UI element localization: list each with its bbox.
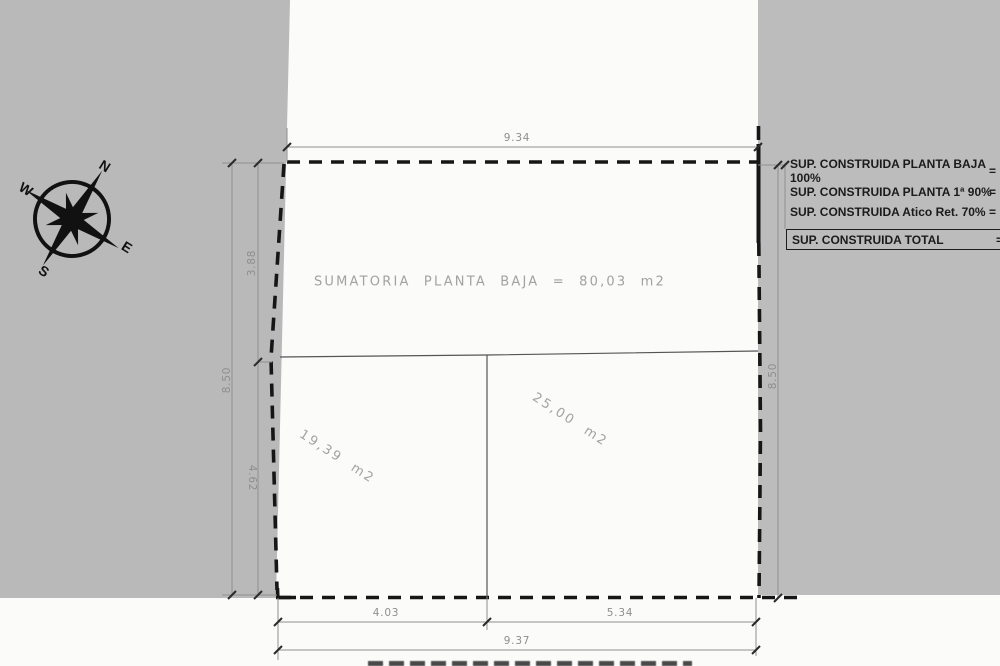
legend-row-equals: = — [989, 205, 996, 219]
legend-row-atico: SUP. CONSTRUIDA Atico Ret. 70% = — [790, 203, 998, 220]
dim-left-upper: 3.88 — [246, 250, 258, 277]
plan-boundary — [271, 126, 806, 598]
legend-row-equals: = — [989, 164, 996, 178]
dimension-lines — [222, 128, 785, 660]
legend-total-box: SUP. CONSTRUIDA TOTAL = — [786, 229, 1000, 250]
legend-row-planta-baja: SUP. CONSTRUIDA PLANTA BAJA 100% = — [790, 162, 998, 179]
dimension-ticks — [228, 143, 789, 654]
legend-row-label: SUP. CONSTRUIDA PLANTA 1ª 90% — [790, 185, 992, 199]
legend-total-equals: = — [996, 233, 1000, 247]
legend-total-label: SUP. CONSTRUIDA TOTAL — [792, 233, 944, 247]
dim-bottom-total: 9.37 — [504, 635, 531, 647]
plan-linework — [0, 0, 1000, 666]
legend-row-label: SUP. CONSTRUIDA PLANTA BAJA 100% — [790, 157, 998, 185]
dim-right-total: 8.50 — [767, 363, 779, 390]
dim-top: 9.34 — [504, 132, 531, 144]
summary-area-label: SUMATORIA PLANTA BAJA = 80,03 m2 — [314, 275, 666, 290]
legend-row-planta-1: SUP. CONSTRUIDA PLANTA 1ª 90% = — [790, 183, 998, 200]
dim-left-total: 8.50 — [221, 367, 233, 394]
dim-bottom-right: 5.34 — [607, 607, 634, 619]
legend-row-equals: = — [989, 185, 996, 199]
compass-icon — [0, 142, 149, 295]
clipped-bottom-text — [368, 661, 692, 666]
dim-left-lower: 4.62 — [246, 465, 258, 492]
floor-plan-drawing: N W E S 9.34 8.50 3.88 4.62 8.50 4.03 5.… — [0, 0, 1000, 666]
legend-row-label: SUP. CONSTRUIDA Atico Ret. 70% — [790, 205, 986, 219]
dim-bottom-left: 4.03 — [373, 607, 400, 619]
